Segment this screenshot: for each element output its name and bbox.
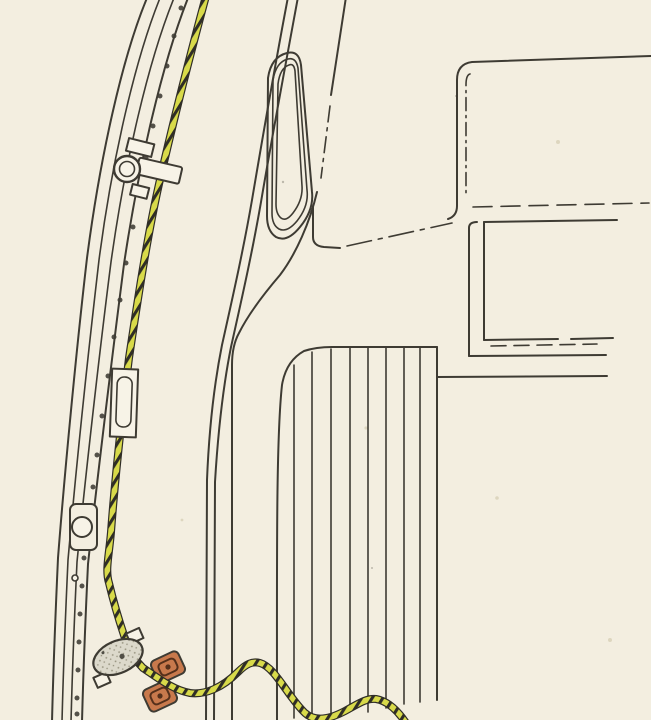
pillar-left-edge-inner bbox=[214, 0, 298, 720]
belt-line-stub bbox=[313, 206, 340, 248]
window-frame-lower bbox=[437, 222, 613, 377]
clamp-strap bbox=[136, 158, 183, 184]
frame-rail-bottom bbox=[469, 355, 606, 356]
illustration-page bbox=[0, 0, 651, 720]
panel-edge-line bbox=[437, 376, 607, 377]
small-hole bbox=[72, 575, 78, 581]
latch-hole-feature bbox=[70, 504, 97, 581]
belt-line bbox=[313, 206, 452, 248]
track-inner-edge bbox=[82, 0, 188, 720]
striped-cable bbox=[107, 0, 406, 720]
cable-outline bbox=[107, 0, 406, 720]
pillar-right-edge-lower bbox=[232, 192, 317, 720]
paper-texture bbox=[181, 95, 612, 642]
vent-slot-opening bbox=[276, 65, 302, 220]
window-frame-upper-sill-dashed bbox=[473, 203, 649, 207]
cable-clamp bbox=[114, 138, 182, 199]
ribbed-panel bbox=[277, 347, 437, 720]
window-frame-upper-outline bbox=[448, 56, 651, 219]
window-frame-upper-sill bbox=[484, 220, 617, 222]
belt-line-hidden bbox=[347, 223, 452, 246]
window-frame-upper bbox=[448, 56, 651, 222]
cable-body bbox=[107, 0, 406, 720]
frame-rail-top-dash bbox=[571, 338, 613, 339]
clamp-head bbox=[114, 156, 140, 182]
pillar-left-edge-outer bbox=[206, 0, 288, 720]
latch-hole bbox=[72, 517, 92, 537]
vent-slot bbox=[267, 53, 312, 239]
illustration-canvas bbox=[0, 0, 651, 720]
panel-outline bbox=[277, 347, 437, 720]
tensioner-fitting bbox=[82, 628, 154, 688]
guide-sleeve bbox=[110, 369, 138, 438]
frame-rail-hidden bbox=[491, 344, 597, 346]
window-frame-upper-hidden-edge bbox=[466, 74, 470, 197]
frame-stile-left bbox=[469, 222, 477, 356]
pillar-right-edge-top bbox=[331, 0, 346, 95]
frame-rail-top bbox=[484, 339, 558, 340]
clamp-foot bbox=[130, 184, 149, 199]
pillar-right-edge-hidden bbox=[321, 106, 330, 178]
